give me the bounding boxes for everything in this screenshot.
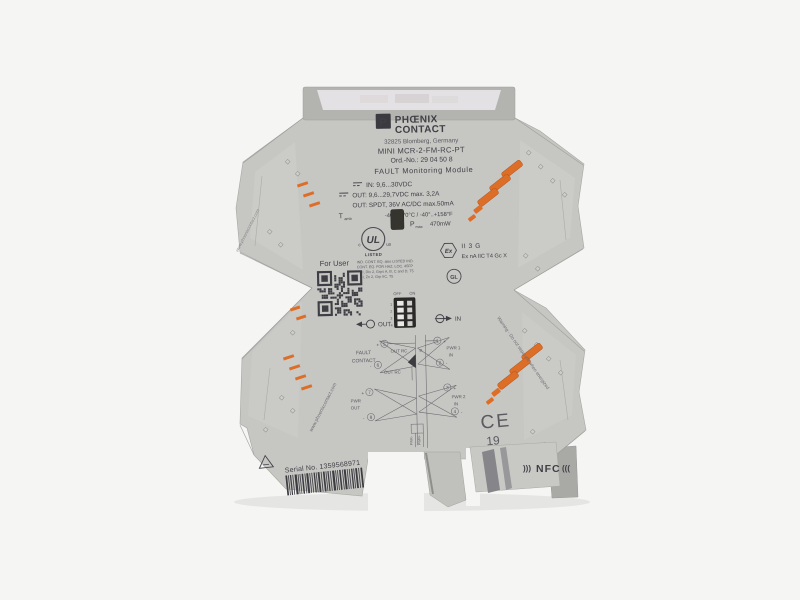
- qr-module: [330, 292, 332, 294]
- spec-input: IN: 9,6...30VDC: [366, 181, 413, 189]
- nfc-waves-left: ))): [523, 464, 531, 473]
- qr-module: [350, 313, 352, 315]
- qr-module: [339, 277, 341, 279]
- qr-module: [343, 305, 345, 307]
- qr-module: [337, 307, 339, 309]
- terminal-label: OUT RC: [384, 369, 401, 374]
- qr-module: [337, 286, 339, 288]
- qr-module: [346, 305, 348, 307]
- qr-module: [341, 286, 343, 288]
- qr-module: [337, 294, 339, 296]
- qr-module: [354, 292, 356, 294]
- qr-module: [341, 305, 343, 307]
- qr-module: [361, 305, 363, 307]
- qr-module: [334, 286, 336, 288]
- terminal-label: PWR 1: [446, 345, 461, 350]
- qr-module: [348, 311, 350, 313]
- qr-module: [335, 314, 337, 316]
- dip-on-label: ON: [409, 291, 415, 296]
- terminal-sign: +: [453, 386, 456, 391]
- ex-category: II 3 G: [461, 243, 481, 250]
- dip-row-number: 2: [390, 310, 392, 314]
- qr-module: [346, 303, 348, 305]
- terminal-label: IN: [449, 352, 454, 357]
- qr-module: [354, 300, 356, 302]
- qr-module: [361, 300, 363, 302]
- qr-module: [356, 292, 358, 294]
- qr-module: [350, 298, 352, 300]
- qr-module: [341, 294, 343, 296]
- qr-module: [339, 309, 341, 311]
- qr-module: [337, 284, 339, 286]
- qr-module: [343, 286, 345, 288]
- qr-module: [358, 300, 360, 302]
- fault-contact-label: FAULT: [356, 350, 371, 356]
- qr-module: [337, 301, 339, 303]
- dip-row-number: 1: [390, 303, 392, 307]
- qr-module: [322, 297, 324, 299]
- out-label: OUT: [378, 321, 391, 328]
- qr-module: [343, 273, 345, 275]
- qr-module: [326, 297, 328, 299]
- window-insert: [360, 95, 388, 103]
- product-photo-scene: P PHŒNIX CONTACT 32825 Blomberg, Germany…: [0, 0, 800, 600]
- qr-module: [341, 290, 343, 292]
- qr-module: [317, 288, 319, 290]
- qr-module: [354, 294, 356, 296]
- qr-module: [343, 292, 345, 294]
- qr-module: [322, 290, 324, 292]
- qr-module: [350, 296, 352, 298]
- din-rail-slot-gap: [368, 452, 424, 512]
- qr-module: [339, 284, 341, 286]
- qr-module: [345, 292, 347, 294]
- qr-module: [350, 311, 352, 313]
- gl-letters: GL: [450, 275, 458, 281]
- qr-module: [343, 309, 345, 311]
- qr-module: [339, 307, 341, 309]
- qr-finder: [351, 275, 358, 282]
- ul-listed: LISTED: [365, 252, 382, 257]
- qr-module: [356, 298, 358, 300]
- terminal-sign: +: [443, 339, 446, 344]
- qr-module: [330, 297, 332, 299]
- qr-module: [348, 298, 350, 300]
- qr-module: [335, 303, 337, 305]
- qr-module: [352, 292, 354, 294]
- qr-module: [330, 288, 332, 290]
- qr-module: [335, 307, 337, 309]
- qr-module: [334, 279, 336, 281]
- ul-cert-line: CL I, Zn 2, Grp IIC, T5: [357, 275, 393, 280]
- qr-module: [335, 297, 337, 299]
- qr-module: [322, 295, 324, 297]
- qr-module: [347, 292, 349, 294]
- qr-module: [348, 309, 350, 311]
- qr-module: [339, 281, 341, 283]
- qr-module: [345, 296, 347, 298]
- qr-module: [334, 284, 336, 286]
- qr-module: [356, 294, 358, 296]
- coding-socket: [391, 209, 404, 229]
- qr-module: [352, 290, 354, 292]
- qr-module: [339, 296, 341, 298]
- qr-module: [360, 290, 362, 292]
- qr-module: [354, 303, 356, 305]
- window-insert: [432, 96, 458, 103]
- qr-module: [339, 312, 341, 314]
- qr-module: [356, 311, 358, 313]
- terminal-label: PWR: [351, 398, 361, 403]
- qr-module: [337, 312, 339, 314]
- ex-code: Ex nA IIC T4 Gc X: [462, 253, 508, 260]
- qr-module: [341, 279, 343, 281]
- qr-module: [337, 309, 339, 311]
- qr-module: [343, 303, 345, 305]
- terminal-label: IN: [454, 401, 459, 406]
- qr-module: [356, 305, 358, 307]
- qr-module: [346, 314, 348, 316]
- qr-module: [344, 311, 346, 313]
- brand-name-bottom: CONTACT: [395, 124, 446, 136]
- qr-module: [339, 292, 341, 294]
- for-user-label: For User: [320, 258, 350, 268]
- qr-module: [358, 287, 360, 289]
- qr-module: [341, 288, 343, 290]
- qr-module: [347, 290, 349, 292]
- qr-module: [332, 292, 334, 294]
- pmax-subscript: max: [415, 225, 422, 229]
- qr-module: [341, 303, 343, 305]
- qr-module: [343, 283, 345, 285]
- qr-module: [356, 303, 358, 305]
- terminal-sign: +: [361, 391, 364, 396]
- qr-module: [341, 281, 343, 283]
- qr-module: [319, 290, 321, 292]
- qr-module: [337, 303, 339, 305]
- qr-module: [354, 298, 356, 300]
- qr-module: [326, 295, 328, 297]
- dip-off-label: OFF: [393, 291, 402, 296]
- qr-module: [319, 288, 321, 290]
- qr-module: [343, 275, 345, 277]
- qr-module: [359, 313, 361, 315]
- diagram-si-label: SI: [419, 349, 423, 352]
- pwr-plus-label: PWR+: [417, 435, 421, 445]
- qr-module: [339, 294, 341, 296]
- qr-module: [358, 298, 360, 300]
- ex-letters: Ex: [445, 249, 453, 255]
- qr-module: [337, 299, 339, 301]
- qr-module: [341, 277, 343, 279]
- qr-module: [350, 301, 352, 303]
- qr-module: [324, 290, 326, 292]
- qr-module: [358, 290, 360, 292]
- qr-module: [332, 297, 334, 299]
- nfc-waves-right: (((: [562, 464, 570, 473]
- qr-module: [347, 288, 349, 290]
- qr-module: [339, 279, 341, 281]
- qr-module: [352, 294, 354, 296]
- qr-module: [334, 277, 336, 279]
- qr-module: [324, 297, 326, 299]
- model-number: MINI MCR-2-FM-RC-PT: [378, 145, 465, 156]
- in-label: IN: [455, 316, 461, 323]
- terminal-label: OUT RC: [391, 348, 408, 353]
- order-number: Ord.-No.: 29 04 50 8: [391, 156, 453, 164]
- qr-module: [341, 301, 343, 303]
- window-insert: [395, 94, 429, 103]
- terminal-label: PWR 2: [451, 394, 466, 399]
- tamb-subscript: amb: [344, 217, 351, 221]
- fault-contact-label: CONTACT: [352, 358, 376, 364]
- qr-module: [330, 290, 332, 292]
- qr-module: [358, 305, 360, 307]
- terminal-sign: +: [376, 342, 379, 347]
- device-illustration: P PHŒNIX CONTACT 32825 Blomberg, Germany…: [0, 0, 800, 600]
- dip-row-number: 3: [390, 317, 392, 321]
- qr-module: [348, 301, 350, 303]
- pmax-symbol: P: [410, 221, 415, 228]
- qr-module: [344, 314, 346, 316]
- qr-module: [328, 292, 330, 294]
- qr-module: [324, 295, 326, 297]
- qr-module: [361, 302, 363, 304]
- logo-letter: P: [379, 117, 387, 129]
- qr-module: [343, 281, 345, 283]
- qr-finder: [321, 275, 328, 282]
- nfc-label: NFC: [536, 463, 561, 475]
- qr-finder: [322, 305, 329, 312]
- terminal-label: OUT: [351, 405, 361, 410]
- qr-module: [328, 290, 330, 292]
- qr-module: [337, 288, 339, 290]
- qr-module: [334, 275, 336, 277]
- pwr-minus-label: PWR-: [409, 436, 413, 445]
- ce-letters: CE: [480, 410, 512, 434]
- ul-letters: UL: [366, 235, 380, 246]
- qr-module: [346, 309, 348, 311]
- ul-us: us: [386, 242, 392, 247]
- qr-module: [328, 288, 330, 290]
- qr-module: [360, 287, 362, 289]
- pmax-value: 470mW: [430, 221, 451, 227]
- qr-module: [348, 296, 350, 298]
- qr-module: [324, 288, 326, 290]
